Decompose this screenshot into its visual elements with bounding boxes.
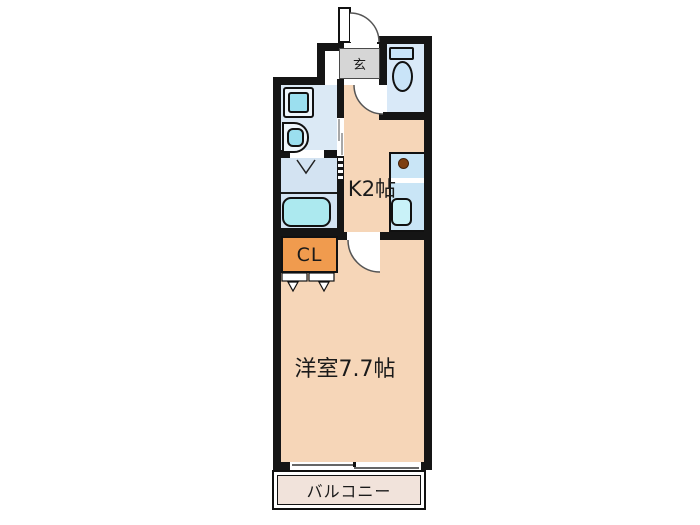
door-track-dash [338, 158, 343, 161]
floor-plan: 玄 CL [0, 0, 700, 525]
balcony-label: バルコニー [307, 478, 392, 502]
kitchen-label: K2帖 [341, 176, 403, 200]
door-window-symbols [0, 0, 700, 525]
balcony-inner: バルコニー [277, 475, 421, 505]
front-door-leaf [339, 8, 350, 42]
closet-door-panel-2 [309, 273, 334, 281]
closet-door-pivot-1 [288, 282, 298, 291]
door-track-dash [338, 170, 343, 173]
balcony: バルコニー [272, 470, 426, 510]
sliding-window-latch [353, 462, 356, 467]
bath-folding-door-icon [297, 160, 315, 173]
western-room-label: 洋室7.7帖 [283, 354, 407, 380]
closet-door-pivot-2 [319, 282, 329, 291]
door-track-dash [338, 164, 343, 167]
closet-door-panel-1 [282, 273, 307, 281]
